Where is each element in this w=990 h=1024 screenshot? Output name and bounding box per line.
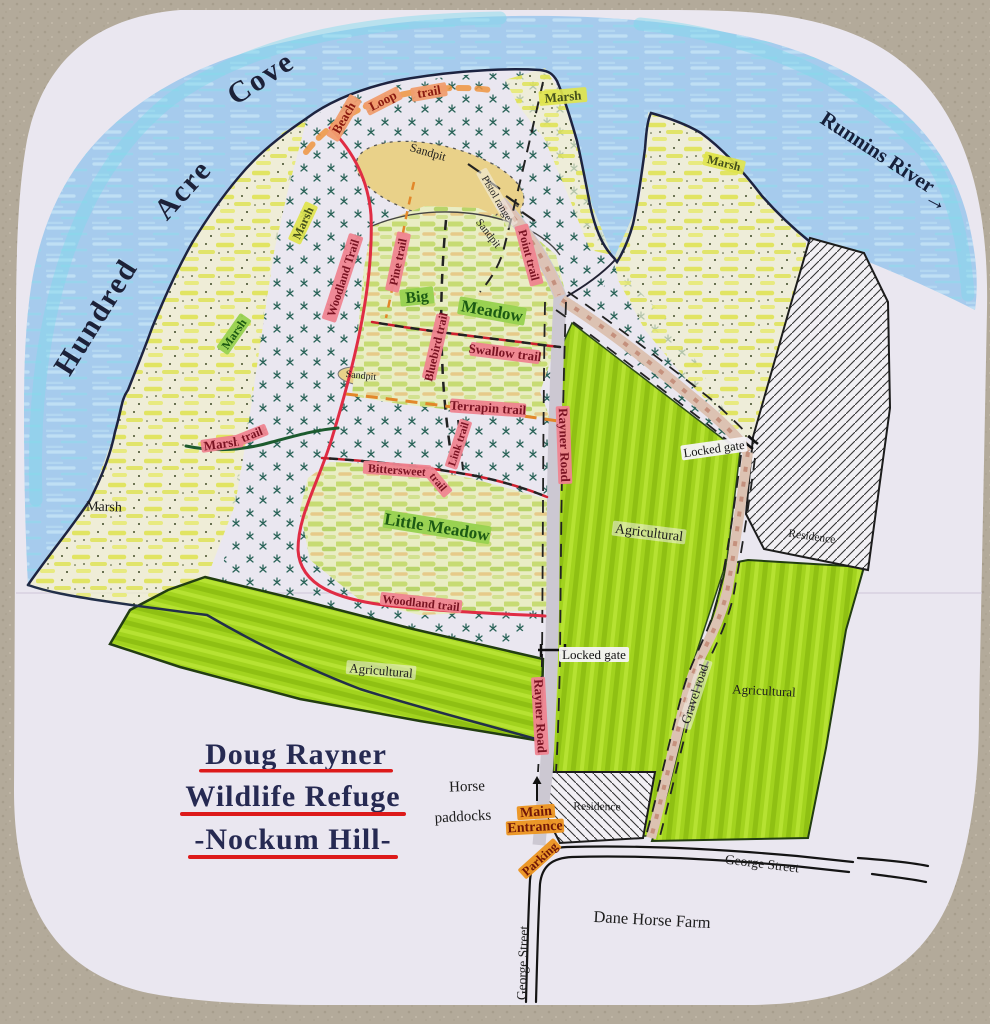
horse-paddocks-label-line1: Horse [449, 778, 486, 795]
rayner-road-label-1: Rayner Road [556, 406, 574, 484]
title-underline-1 [199, 769, 393, 773]
title-line-3: -Nockum Hill- [194, 823, 391, 856]
residence-label-bottom: Residence [573, 801, 620, 814]
locked-gate-label-2: Locked gate [559, 647, 629, 662]
svg-text:George Street: George Street [514, 925, 532, 1000]
svg-text:paddocks: paddocks [434, 808, 492, 827]
title-line-1: Doug Rayner [205, 738, 387, 771]
george-street-label-vertical: George Street [514, 925, 532, 1000]
marsh-label-left-lower: Marsh [86, 499, 122, 515]
map-photo: Hundred Acre Cove Runnins River → Marsh … [0, 0, 990, 1024]
horse-paddocks-label-line2: paddocks [434, 808, 492, 827]
svg-text:Big: Big [405, 288, 430, 307]
title-underline-3 [188, 855, 398, 859]
svg-text:Marsh: Marsh [86, 499, 122, 515]
svg-text:Rayner Road: Rayner Road [556, 408, 574, 483]
title-line-2: Wildlife Refuge [185, 780, 400, 813]
svg-text:Entrance: Entrance [507, 819, 563, 837]
svg-text:Horse: Horse [449, 778, 486, 795]
svg-text:Locked gate: Locked gate [562, 647, 626, 662]
svg-text:Residence: Residence [573, 801, 620, 814]
map-title: Doug Rayner Wildlife Refuge -Nockum Hill… [180, 738, 406, 859]
main-entrance-label-line2: Entrance [506, 818, 565, 836]
title-underline-2 [180, 812, 406, 816]
